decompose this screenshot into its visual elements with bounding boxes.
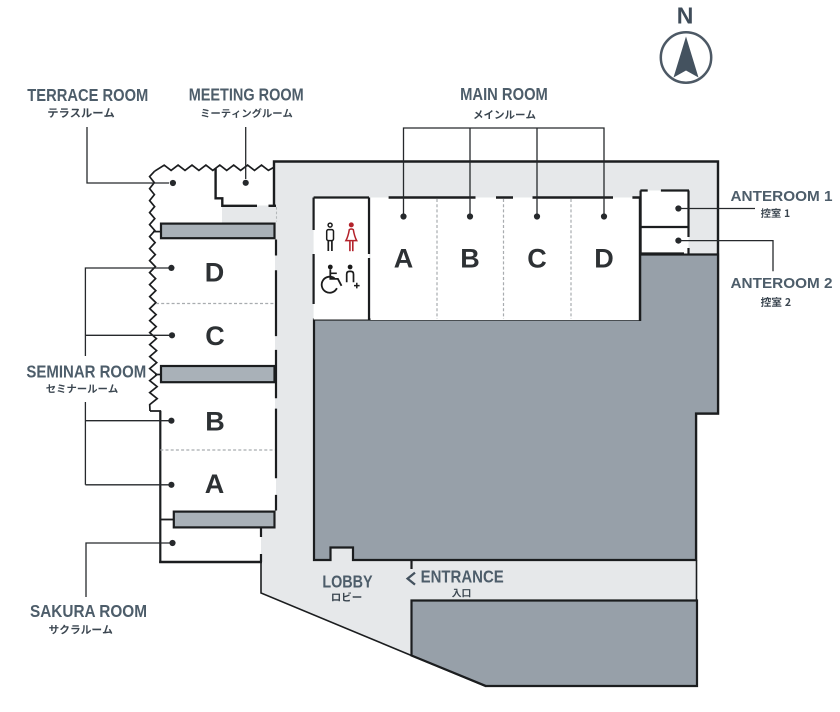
svg-text:SEMINAR ROOM: SEMINAR ROOM: [26, 362, 146, 382]
svg-text:ANTEROOM 2: ANTEROOM 2: [731, 275, 833, 292]
svg-text:B: B: [205, 407, 225, 437]
svg-text:A: A: [394, 243, 414, 273]
svg-text:N: N: [677, 3, 694, 29]
svg-text:SAKURA ROOM: SAKURA ROOM: [30, 601, 147, 621]
svg-text:C: C: [205, 321, 225, 351]
svg-text:C: C: [527, 243, 547, 273]
svg-text:ENTRANCE: ENTRANCE: [421, 567, 504, 587]
svg-text:MAIN ROOM: MAIN ROOM: [460, 84, 548, 104]
svg-text:D: D: [594, 243, 614, 273]
svg-text:TERRACE ROOM: TERRACE ROOM: [27, 85, 148, 105]
svg-text:MEETING ROOM: MEETING ROOM: [189, 85, 304, 105]
svg-text:B: B: [460, 243, 480, 273]
svg-text:LOBBY: LOBBY: [322, 571, 373, 591]
svg-text:D: D: [205, 258, 225, 288]
svg-text:ANTEROOM 1: ANTEROOM 1: [731, 188, 833, 205]
svg-text:A: A: [205, 469, 225, 499]
